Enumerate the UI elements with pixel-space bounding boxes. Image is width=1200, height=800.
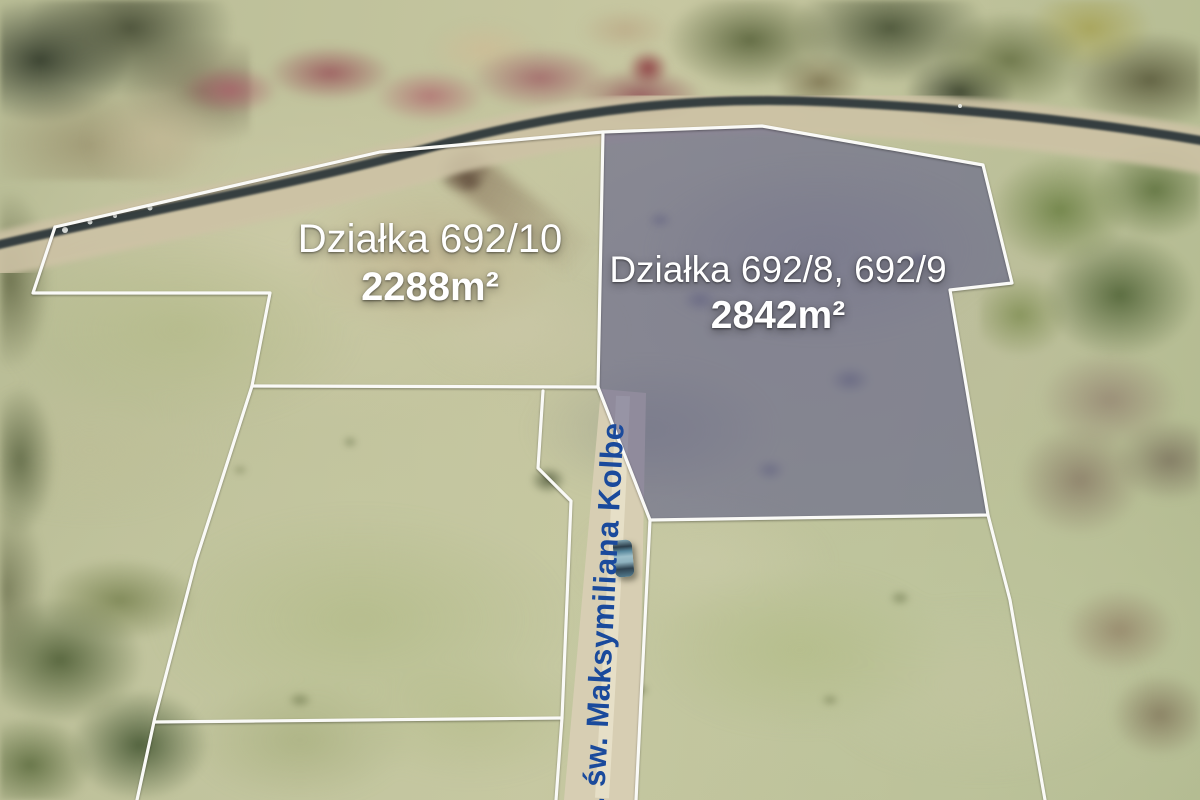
boundary-north xyxy=(55,132,603,227)
plot-name: Działka 692/8, 692/9 xyxy=(578,249,978,291)
boundary-east-diagonal xyxy=(988,515,1045,800)
boundary-west-diagonal xyxy=(137,386,252,800)
boundary-middle-south xyxy=(154,718,562,722)
plot-label-692-10: Działka 692/10 2288m² xyxy=(230,217,630,310)
plot-area: 2842m² xyxy=(578,294,978,338)
boundary-road-north xyxy=(252,386,598,387)
boundary-road-left xyxy=(538,391,571,800)
plot-name: Działka 692/10 xyxy=(230,217,630,262)
aerial-photo: Działka 692/10 2288m² Działka 692/8, 692… xyxy=(0,0,1200,800)
plot-area: 2288m² xyxy=(230,265,630,310)
plot-label-692-8-692-9: Działka 692/8, 692/9 2842m² xyxy=(578,249,978,338)
